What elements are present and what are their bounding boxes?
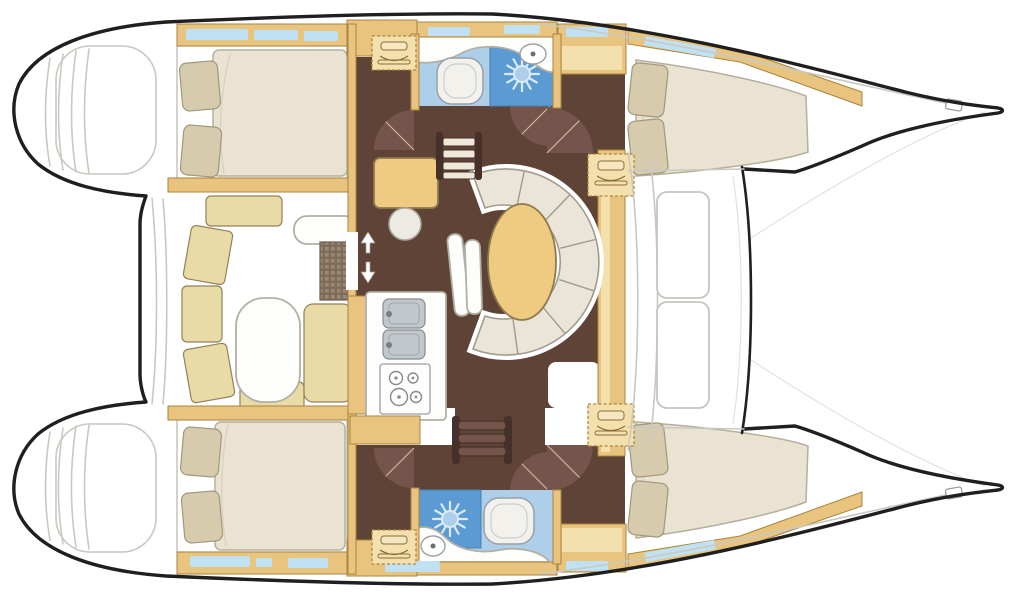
pillow — [627, 480, 668, 537]
starboard-hull-inner-wall — [168, 406, 350, 420]
step-rail — [475, 132, 482, 180]
window-icon — [256, 558, 272, 567]
pillow — [180, 124, 222, 177]
port-stern-platform — [46, 46, 157, 174]
cockpit-table — [236, 298, 300, 402]
deck-hatch — [657, 192, 709, 298]
faucet-icon — [386, 342, 392, 348]
steps-icon — [381, 536, 407, 544]
floorplan-svg — [0, 0, 1024, 598]
galley-cabinet-column — [348, 296, 368, 414]
window-icon — [504, 25, 540, 34]
port-head — [415, 36, 557, 106]
double-berth — [215, 422, 345, 550]
transom-step-line — [85, 49, 90, 173]
step-tread — [458, 447, 506, 456]
nav-table — [374, 158, 438, 208]
starboard-stern-platform — [46, 424, 157, 552]
head-partition — [553, 490, 561, 564]
saloon-door-opening — [346, 232, 358, 290]
cockpit-bench-cushion — [183, 225, 234, 285]
transom-step-line — [72, 51, 77, 172]
nav-stool — [389, 208, 421, 240]
step-rail — [436, 132, 443, 180]
starboard-aft-cabin — [177, 420, 347, 552]
cockpit-bench-cushion — [206, 196, 282, 226]
cockpit-bench-cushion — [183, 343, 236, 404]
window-icon — [304, 31, 338, 41]
settee-bench — [465, 240, 483, 314]
step-tread — [458, 421, 506, 430]
galley-lower-cabinet — [350, 416, 420, 444]
step-tread — [443, 150, 475, 158]
port-companionway-steps — [436, 132, 482, 180]
basin-drain-icon — [431, 544, 436, 549]
transom-step-line — [59, 428, 64, 544]
window-icon — [254, 30, 298, 40]
double-berth — [213, 50, 347, 176]
crossbeam-shadow-line — [733, 176, 741, 424]
dinette-table — [488, 204, 556, 320]
step-tread — [443, 172, 475, 179]
step-tread — [458, 434, 506, 443]
transom-seat-line — [152, 198, 157, 404]
stove-panel — [380, 364, 430, 414]
window-icon — [288, 558, 328, 568]
transom-step-line — [59, 54, 64, 170]
window-icon — [428, 27, 470, 36]
port-forward-cabin — [627, 60, 808, 176]
saloon-floor-white-pocket — [548, 362, 600, 408]
steps-icon — [381, 42, 407, 50]
port-hull-inner-wall — [168, 178, 350, 192]
cockpit-side-seat — [304, 304, 352, 402]
starboard-forward-cabin-steps — [588, 404, 634, 446]
window-icon — [186, 29, 248, 40]
transom-step-line — [46, 432, 51, 540]
faucet-icon — [386, 311, 392, 317]
cockpit — [152, 196, 358, 412]
step-tread — [443, 138, 475, 146]
pillow — [627, 62, 668, 117]
cockpit-bench-cushion — [182, 286, 222, 342]
port-aft-cabin — [177, 46, 347, 178]
pillow — [179, 60, 221, 111]
port-forward-cabin-steps — [588, 154, 634, 196]
starboard-forward-cabin — [627, 422, 808, 538]
pillow — [180, 426, 222, 477]
transom-step-line — [72, 426, 77, 547]
starboard-aft-cabin-steps — [372, 530, 416, 564]
galley — [348, 292, 446, 444]
steps-icon — [598, 411, 624, 420]
forward-crossbeam — [742, 167, 751, 433]
transom-step-line — [46, 58, 51, 166]
head-partition — [553, 34, 561, 108]
window-icon — [190, 556, 250, 567]
steps-icon — [598, 161, 624, 170]
transom-seat-line — [163, 199, 167, 404]
deck-hatch — [657, 302, 709, 408]
transom-step-line — [85, 425, 90, 549]
catamaran-floorplan — [0, 0, 1024, 598]
starboard-head — [411, 490, 557, 562]
basin-drain-icon — [531, 52, 536, 57]
pillow — [181, 490, 223, 543]
step-tread — [443, 162, 475, 170]
port-aft-cabin-steps — [372, 36, 416, 70]
